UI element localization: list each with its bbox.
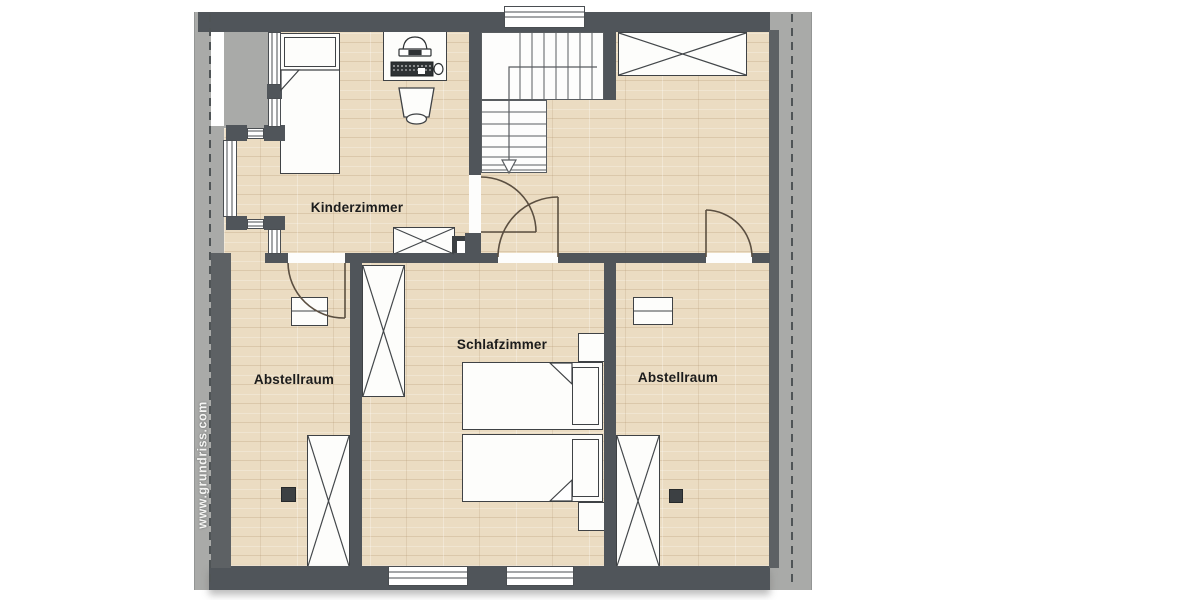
wall-mid-seg-d <box>558 253 706 263</box>
door-opening-abstellraum-right <box>706 253 752 263</box>
wall-mid-seg-b <box>345 253 465 263</box>
window-dormer-south <box>247 219 264 229</box>
window-post <box>264 216 285 230</box>
cabinet-left <box>291 297 328 326</box>
wall-stair-east <box>604 32 616 100</box>
wall-mid-seg-c <box>465 253 498 263</box>
wardrobe-abstellraum-right-icon <box>616 435 660 567</box>
watermark: www.grundriss.com <box>196 385 209 545</box>
wardrobe-schlafzimmer-icon <box>362 265 405 397</box>
wall-mid-seg-a <box>265 253 288 263</box>
single-bed-pillow <box>284 37 336 67</box>
wall-west-knee <box>211 253 231 568</box>
nightstand-bottom <box>578 502 606 531</box>
window-top-stairs <box>504 6 585 28</box>
room-label-abstellraum-left: Abstellraum <box>224 372 364 387</box>
vent-square-left-icon <box>281 487 296 502</box>
wall-schlafzimmer-east <box>604 253 616 568</box>
wardrobe-hall-icon <box>618 32 747 76</box>
window-bottom-left <box>388 566 468 586</box>
room-label-abstellraum-right: Abstellraum <box>608 370 748 385</box>
staircase-upper-flight <box>481 32 604 100</box>
dresser-kinderzimmer-icon <box>393 227 455 255</box>
wall-top <box>198 12 770 32</box>
desk <box>383 31 447 81</box>
door-opening-abstellraum-left <box>288 253 345 263</box>
window-dormer-west <box>223 140 237 217</box>
double-bed-pillow-bottom <box>572 439 599 497</box>
nightstand-top <box>578 333 606 362</box>
window-post <box>264 125 285 141</box>
window-post <box>226 216 247 230</box>
cabinet-right <box>633 297 673 325</box>
wall-stair-west <box>469 32 481 175</box>
window-post <box>267 84 282 99</box>
room-label-kinderzimmer: Kinderzimmer <box>287 200 427 215</box>
window-post <box>226 125 247 141</box>
double-bed-pillow-top <box>572 367 599 425</box>
wall-corner-post <box>465 233 481 253</box>
floor-plan-page: Kinderzimmer Schlafzimmer Abstellraum Ab… <box>0 0 1200 600</box>
door-opening-schlafzimmer <box>498 253 558 263</box>
staircase-lower-flight <box>481 100 547 173</box>
door-opening-kinderzimmer <box>469 175 481 233</box>
wall-schlafzimmer-west <box>350 260 362 568</box>
window-left-lower <box>268 229 281 254</box>
roof-space-top-left <box>224 32 269 128</box>
window-left-upper <box>268 32 281 85</box>
window-left-upper2 <box>268 98 281 127</box>
window-bottom-right <box>506 566 574 586</box>
wardrobe-abstellraum-left-icon <box>307 435 350 567</box>
room-label-schlafzimmer: Schlafzimmer <box>432 337 572 352</box>
wall-east-knee <box>769 30 779 568</box>
window-dormer-north <box>247 128 264 139</box>
vent-square-right-icon <box>669 489 683 503</box>
wall-mid-seg-e <box>752 253 770 263</box>
wall-bottom <box>209 566 770 590</box>
